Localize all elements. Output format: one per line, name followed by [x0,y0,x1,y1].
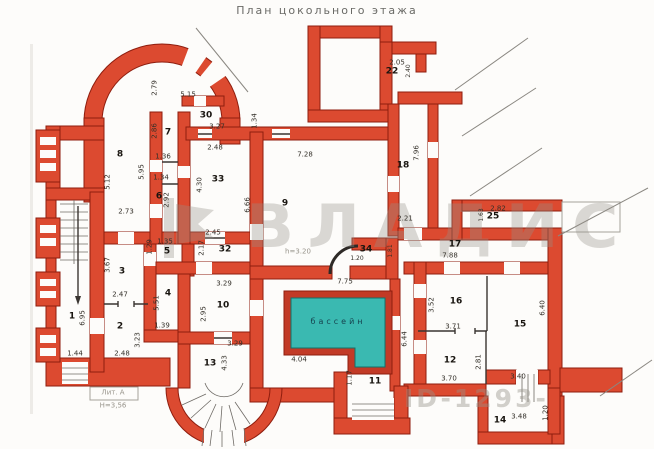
terrace [308,26,392,122]
left-staircase [60,200,88,384]
vladis-watermark: ВЛАДИС [246,192,632,262]
spiral-stair-steps [182,383,250,448]
pool [284,291,392,374]
scan-edge [30,44,33,414]
vladis-logo-watermark [160,194,220,260]
arch-wall [84,44,240,122]
pool-water [291,298,385,367]
bottom-center-stairs [352,398,394,420]
id-watermark: ID-1293- [404,384,549,413]
floorplan-page: План цокольного этажа [0,0,654,449]
stamp-box [90,387,138,400]
